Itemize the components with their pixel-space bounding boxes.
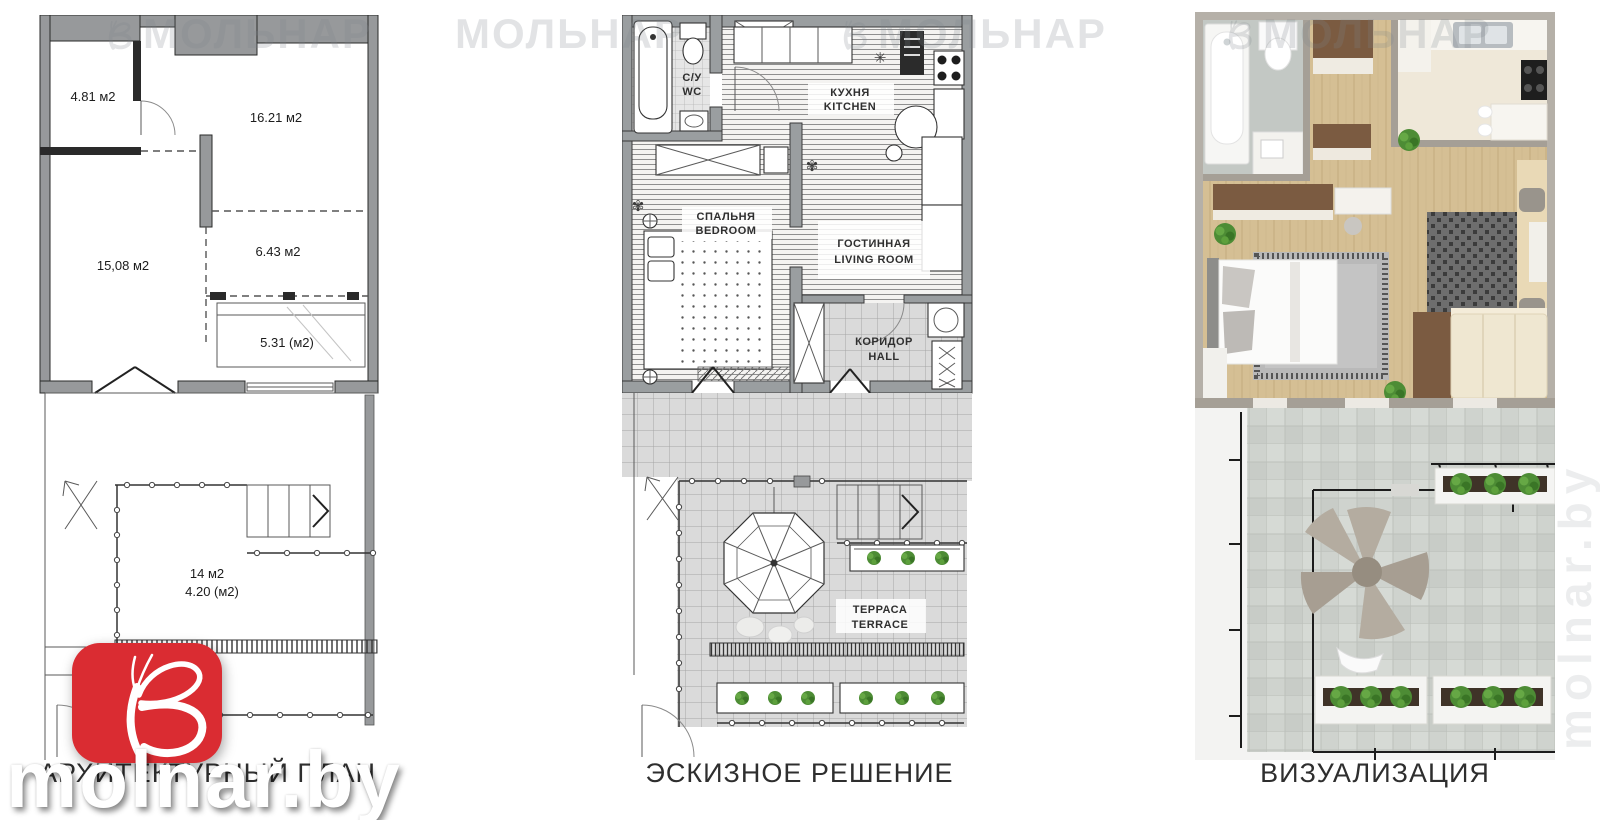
render-bathroom (1203, 20, 1305, 178)
plant-icon: ✾ (806, 157, 819, 175)
caption-visualization: ВИЗУАЛИЗАЦИЯ (1195, 758, 1555, 789)
sofa-icon (922, 137, 962, 205)
render-kitchen (1398, 20, 1547, 140)
island-icon (1491, 104, 1547, 140)
plant-icon: ✾ (632, 197, 645, 215)
room-label-terrace-ru: ТЕРРАСА (853, 604, 908, 616)
area-label: 14 м2 (190, 566, 224, 581)
toilet-icon (680, 23, 706, 39)
room-label-wc-ru: С/У (682, 72, 701, 84)
floorplan-sheet: 4.81 м2 16.21 м2 15,08 м2 6.43 м2 5.31 (… (0, 0, 1600, 820)
room-label-hall-ru: КОРИДОР (855, 336, 913, 348)
room-label-living-ru: ГОСТИННАЯ (837, 238, 910, 250)
rug-icon (1427, 212, 1519, 312)
area-label: 16.21 м2 (250, 110, 302, 125)
stove-icon (1521, 60, 1547, 100)
fridge-icon (900, 31, 924, 75)
render-terrace (1195, 398, 1555, 760)
area-label: 6.43 м2 (255, 244, 300, 259)
upper-unit-walls (40, 15, 378, 393)
area-label: 15,08 м2 (97, 258, 149, 273)
bathroom: С/У WC (634, 21, 708, 133)
stove-icon (934, 51, 964, 85)
watermark-site: molnar.by (6, 740, 402, 820)
sofa-icon (1451, 314, 1547, 398)
room-label-terrace-en: TERRACE (852, 619, 909, 631)
panel-visualization (1195, 12, 1555, 760)
room-label-bedroom-en: BEDROOM (696, 225, 757, 237)
room-label-living-en: LIVING ROOM (834, 254, 913, 266)
caption-sketch-solution: ЭСКИЗНОЕ РЕШЕНИЕ (622, 758, 977, 789)
desk-icon (1335, 188, 1391, 214)
shelf-icon (1213, 184, 1333, 210)
render-bedroom (1207, 184, 1391, 380)
room-label-kitchen-ru: КУХНЯ (830, 87, 870, 99)
render-apartment (1195, 12, 1555, 404)
room-label-hall-en: HALL (868, 351, 899, 363)
panel-sketch-solution: С/У WC ✳ КУ (622, 15, 977, 760)
room-label-wc-en: WC (682, 86, 701, 98)
room-label-bedroom-ru: СПАЛЬНЯ (697, 211, 756, 223)
terrace-stair (247, 485, 330, 537)
terrace: ТЕРРАСА TERRACE (622, 393, 972, 760)
railing-hatch-band (710, 643, 964, 656)
watermark-side: molnar.by (1548, 70, 1600, 750)
room-label-kitchen-en: KITCHEN (824, 101, 876, 113)
washbasin-icon (680, 111, 708, 131)
area-label: 5.31 (м2) (260, 335, 314, 350)
area-label: 4.20 (м2) (185, 584, 239, 599)
area-label: 4.81 м2 (70, 89, 115, 104)
armchair-icon (1519, 188, 1545, 212)
vent-icon: ✳ (874, 49, 887, 67)
